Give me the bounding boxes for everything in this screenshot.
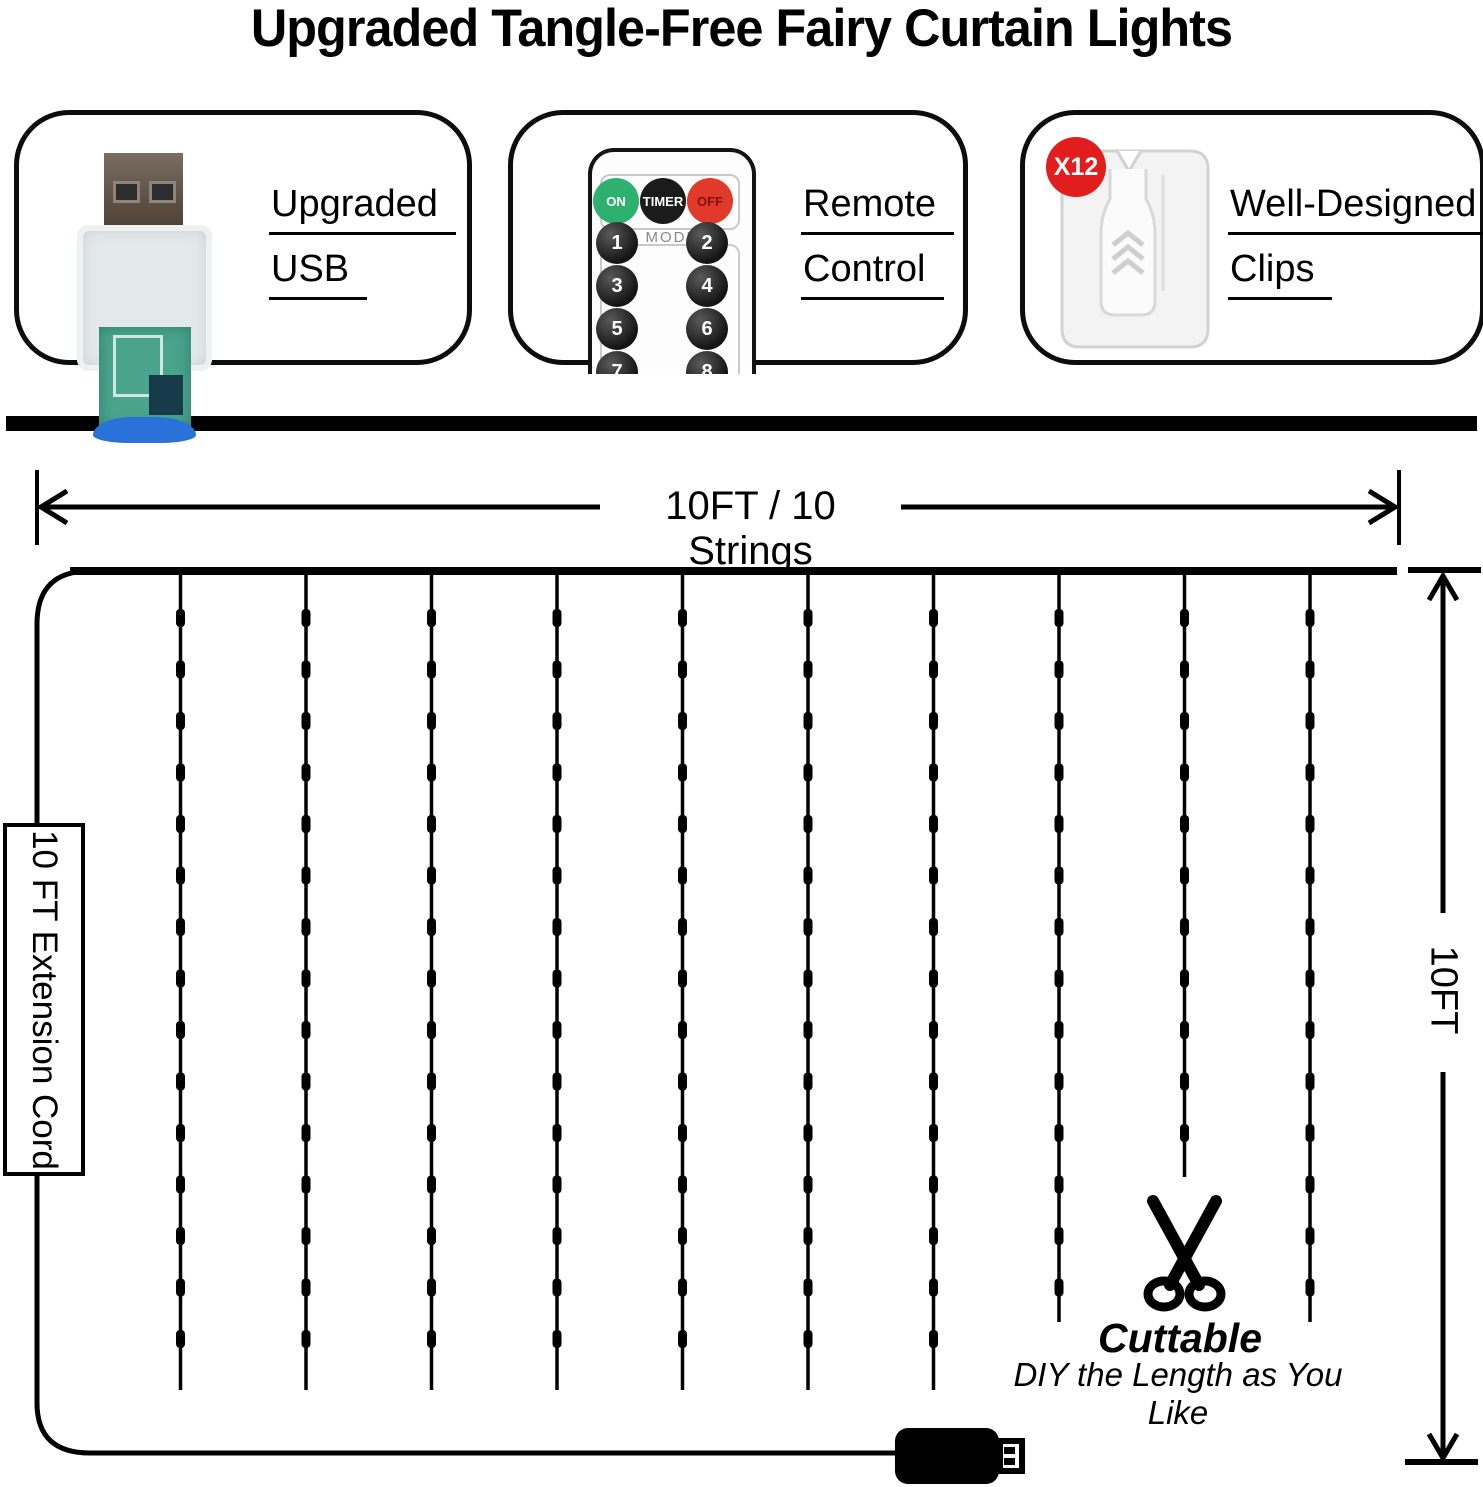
led-bulb [678, 609, 687, 627]
led-bulb [804, 815, 813, 833]
led-bulb [678, 1279, 687, 1297]
led-bulb [176, 1330, 185, 1348]
led-bulb [1055, 1227, 1064, 1245]
led-bulb [1055, 970, 1064, 988]
led-bulb [678, 1021, 687, 1039]
led-bulb [553, 1176, 562, 1194]
led-bulb [804, 970, 813, 988]
led-bulb [427, 1073, 436, 1091]
led-bulb [427, 1124, 436, 1142]
led-bulb [929, 609, 938, 627]
led-bulb [804, 661, 813, 679]
led-bulb [427, 815, 436, 833]
led-bulb [678, 764, 687, 782]
led-bulb [302, 661, 311, 679]
led-bulb [929, 970, 938, 988]
led-bulb [1055, 661, 1064, 679]
led-bulb [929, 1021, 938, 1039]
led-bulb [427, 1227, 436, 1245]
led-bulb [1055, 1279, 1064, 1297]
scissors-icon [1148, 1201, 1221, 1307]
led-bulb [1180, 712, 1189, 730]
led-bulb [678, 1124, 687, 1142]
right-dimension-label: 10FT [1422, 946, 1465, 1035]
led-bulb [929, 1176, 938, 1194]
usb-translucent-body [77, 225, 212, 371]
led-bulb [302, 970, 311, 988]
led-bulb [302, 712, 311, 730]
led-bulb [1306, 1279, 1315, 1297]
led-bulb [302, 764, 311, 782]
led-bulb [804, 764, 813, 782]
led-bulb [427, 867, 436, 885]
led-bulb [929, 1073, 938, 1091]
led-bulb [1055, 1124, 1064, 1142]
led-bulb [427, 1021, 436, 1039]
remote-number-button: 4 [686, 265, 728, 307]
led-bulb [1180, 1073, 1189, 1091]
led-bulb [1055, 1073, 1064, 1091]
led-bulb [302, 918, 311, 936]
led-bulb [929, 1279, 938, 1297]
led-bulb [929, 1227, 938, 1245]
quantity-badge: X12 [1046, 137, 1106, 197]
led-bulb [804, 1279, 813, 1297]
led-bulb [1306, 661, 1315, 679]
led-bulb [302, 609, 311, 627]
led-bulb [929, 867, 938, 885]
led-bulb [1306, 867, 1315, 885]
led-bulb [804, 867, 813, 885]
led-bulb [804, 1073, 813, 1091]
led-bulb [302, 1021, 311, 1039]
led-bulb [553, 1227, 562, 1245]
led-bulb [176, 1073, 185, 1091]
led-bulb [804, 1227, 813, 1245]
led-bulb [678, 815, 687, 833]
led-bulb [1180, 764, 1189, 782]
cuttable-title: Cuttable [1035, 1315, 1325, 1362]
led-bulb [427, 1176, 436, 1194]
usb-contact-hole [113, 181, 140, 203]
remote-timer-label: TIMER [643, 194, 683, 209]
led-bulb [427, 1330, 436, 1348]
led-bulb [176, 1279, 185, 1297]
remote-number-button: 2 [686, 222, 728, 264]
led-bulb [1055, 1176, 1064, 1194]
led-bulb [427, 609, 436, 627]
led-bulb [678, 970, 687, 988]
led-bulb [176, 1124, 185, 1142]
led-bulb [1306, 815, 1315, 833]
cuttable-subtitle: DIY the Length as You Like [1003, 1356, 1353, 1432]
led-bulb [1306, 764, 1315, 782]
top-dimension-label: 10FT / 10 Strings [598, 484, 903, 574]
led-bulb [302, 1073, 311, 1091]
led-bulb [553, 1279, 562, 1297]
remote-off-button: OFF [687, 178, 733, 224]
led-bulb [427, 712, 436, 730]
usb-plug-photo [77, 153, 212, 371]
usb-plug-icon [895, 1428, 1022, 1484]
led-bulb [804, 1124, 813, 1142]
led-bulb [302, 867, 311, 885]
usb-blue-cap [93, 417, 196, 443]
led-bulb [678, 1176, 687, 1194]
led-bulb [176, 815, 185, 833]
usb-metal-connector [104, 153, 183, 229]
led-bulb [1055, 867, 1064, 885]
led-bulb [176, 764, 185, 782]
led-bulb [1180, 918, 1189, 936]
led-bulb [678, 1073, 687, 1091]
led-bulb [553, 918, 562, 936]
led-bulb [176, 661, 185, 679]
led-bulb [678, 661, 687, 679]
led-bulb [804, 918, 813, 936]
light-strings [176, 574, 1315, 1390]
led-bulb [1180, 867, 1189, 885]
led-bulb [1055, 1021, 1064, 1039]
led-bulb [1180, 1124, 1189, 1142]
led-bulb [1306, 1176, 1315, 1194]
remote-control-photo: ON TIMER OFF MODE 12345678 [588, 148, 756, 374]
led-bulb [176, 712, 185, 730]
extension-cord-label: 10 FT Extension Cord [24, 830, 64, 1170]
led-bulb [302, 1124, 311, 1142]
led-bulb [929, 918, 938, 936]
led-bulb [427, 970, 436, 988]
led-bulb [176, 1021, 185, 1039]
led-bulb [1055, 764, 1064, 782]
led-bulb [678, 918, 687, 936]
led-bulb [553, 1021, 562, 1039]
led-bulb [427, 764, 436, 782]
led-bulb [929, 712, 938, 730]
remote-timer-button: TIMER [640, 178, 686, 224]
usb-chip [149, 375, 183, 415]
usb-contact-hole [149, 181, 176, 203]
led-bulb [929, 1330, 938, 1348]
led-bulb [1055, 815, 1064, 833]
led-bulb [1055, 609, 1064, 627]
led-bulb [1180, 609, 1189, 627]
led-bulb [553, 1073, 562, 1091]
led-bulb [302, 1227, 311, 1245]
led-bulb [176, 1176, 185, 1194]
remote-on-label: ON [606, 194, 626, 209]
led-bulb [1180, 970, 1189, 988]
led-bulb [553, 867, 562, 885]
led-bulb [929, 815, 938, 833]
led-bulb [1055, 712, 1064, 730]
led-bulb [302, 1330, 311, 1348]
led-bulb [804, 1021, 813, 1039]
led-bulb [176, 609, 185, 627]
led-bulb [427, 661, 436, 679]
led-bulb [1180, 661, 1189, 679]
product-infographic: Upgraded Tangle-Free Fairy Curtain Light… [0, 0, 1483, 1487]
extension-cord-label-box: 10 FT Extension Cord [3, 823, 85, 1176]
remote-on-button: ON [593, 178, 639, 224]
led-bulb [1306, 1073, 1315, 1091]
remote-off-label: OFF [697, 194, 723, 209]
led-bulb [302, 1279, 311, 1297]
led-bulb [302, 1176, 311, 1194]
led-bulb [176, 970, 185, 988]
led-bulb [929, 661, 938, 679]
led-bulb [553, 764, 562, 782]
led-bulb [1306, 1227, 1315, 1245]
led-bulb [553, 661, 562, 679]
remote-number-button: 5 [596, 308, 638, 350]
led-bulb [929, 764, 938, 782]
led-bulb [176, 867, 185, 885]
led-bulb [804, 1176, 813, 1194]
led-bulb [1306, 1124, 1315, 1142]
led-bulb [1306, 970, 1315, 988]
led-bulb [1306, 918, 1315, 936]
led-bulb [1180, 815, 1189, 833]
led-bulb [1180, 1021, 1189, 1039]
led-bulb [678, 1227, 687, 1245]
led-bulb [1306, 1021, 1315, 1039]
led-bulb [804, 1330, 813, 1348]
led-bulb [678, 1330, 687, 1348]
led-bulb [176, 1227, 185, 1245]
remote-number-button: 6 [686, 308, 728, 350]
led-bulb [427, 1279, 436, 1297]
led-bulb [553, 712, 562, 730]
led-bulb [427, 918, 436, 936]
led-bulb [678, 867, 687, 885]
led-bulb [553, 1124, 562, 1142]
remote-number-button: 3 [596, 265, 638, 307]
usb-circuit-board [99, 327, 191, 427]
led-bulb [804, 609, 813, 627]
led-bulb [553, 970, 562, 988]
remote-number-button: 1 [596, 222, 638, 264]
led-bulb [929, 1124, 938, 1142]
led-bulb [678, 712, 687, 730]
led-bulb [804, 712, 813, 730]
led-bulb [553, 1330, 562, 1348]
led-bulb [553, 815, 562, 833]
led-bulb [553, 609, 562, 627]
led-bulb [1306, 712, 1315, 730]
led-bulb [176, 918, 185, 936]
led-bulb [302, 815, 311, 833]
led-bulb [1306, 609, 1315, 627]
led-bulb [1055, 918, 1064, 936]
